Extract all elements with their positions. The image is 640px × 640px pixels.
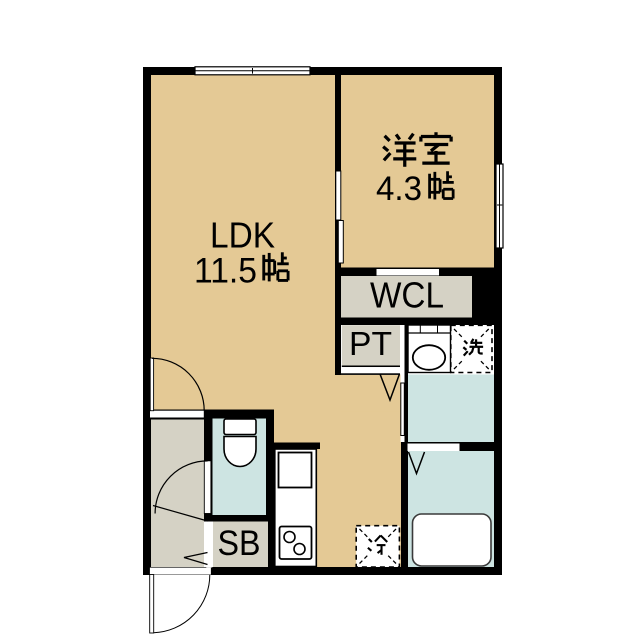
svg-text:SB: SB — [218, 524, 261, 563]
svg-text:WCL: WCL — [370, 275, 444, 316]
svg-text:LDK: LDK — [210, 215, 275, 256]
svg-text:11.5: 11.5 — [194, 252, 257, 291]
svg-text:PT: PT — [349, 325, 392, 362]
svg-text:4.3: 4.3 — [376, 170, 422, 208]
